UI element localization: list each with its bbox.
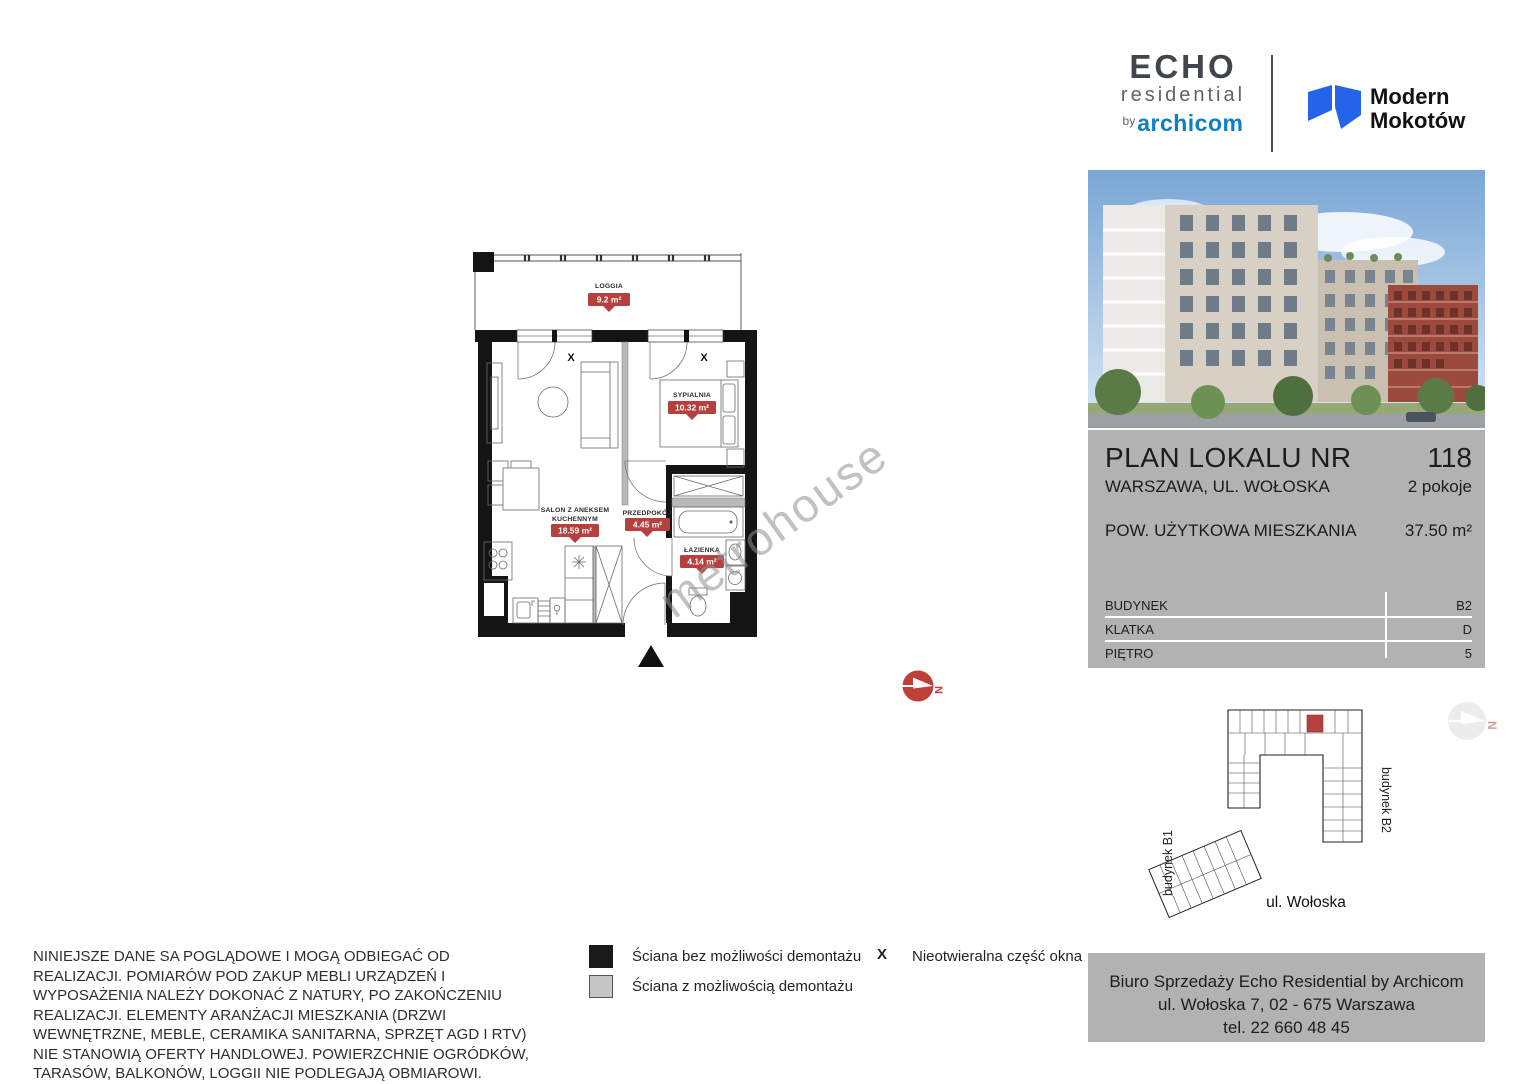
- svg-text:9.2 m²: 9.2 m²: [597, 295, 622, 305]
- echo-residential-text: residential: [1108, 84, 1258, 106]
- table-row: PIĘTRO 5: [1105, 642, 1472, 664]
- legend-swatch-solid-wall: [589, 945, 613, 968]
- archicom-logo-text: archicom: [1137, 110, 1243, 136]
- sales-office-phone: tel. 22 660 48 45: [1088, 1016, 1485, 1039]
- modern-mokotow-logo: Modern Mokotów: [1370, 85, 1465, 133]
- sales-office-name: Biuro Sprzedaży Echo Residential by Arch…: [1088, 970, 1485, 993]
- legend-label-removable-wall: Ściana z możliwością demontażu: [632, 978, 853, 995]
- floor-label: PIĘTRO: [1105, 646, 1153, 661]
- room-label-salon-line1: SALON Z ANEKSEM: [541, 507, 610, 514]
- echo-logo-text: ECHO: [1108, 52, 1258, 82]
- page-title: PLAN LOKALU NR: [1105, 442, 1352, 474]
- building-label: BUDYNEK: [1105, 598, 1168, 613]
- modern-mokotow-mark-icon: [1303, 82, 1363, 130]
- legal-disclaimer: NINIEJSZE DANE SA POGLĄDOWE I MOGĄ ODBIE…: [33, 947, 539, 1084]
- svg-text:18.59 m²: 18.59 m²: [558, 526, 592, 536]
- table-divider: [1385, 592, 1387, 658]
- fixed-window-mark: X: [567, 352, 575, 364]
- building-value: B2: [1456, 598, 1472, 613]
- building-render-photo: [1088, 170, 1485, 428]
- unit-number: 118: [1427, 442, 1472, 474]
- legend-label-solid-wall: Ściana bez możliwości demontażu: [632, 948, 861, 965]
- logo-divider: [1271, 55, 1273, 152]
- area-badge-loggia: 9.2 m²: [588, 293, 630, 312]
- fixed-window-mark: X: [700, 352, 708, 364]
- north-compass-icon: N: [900, 668, 952, 708]
- building-b1-label: budynek B1: [1161, 830, 1175, 896]
- by-label: by: [1123, 114, 1136, 128]
- legend-label-fixed-window: Nieotwieralna część okna: [912, 948, 1082, 965]
- table-row: BUDYNEK B2: [1105, 594, 1472, 618]
- echo-residential-logo: ECHO residential byarchicom: [1108, 52, 1258, 137]
- usable-area-value: 37.50 m²: [1405, 521, 1472, 541]
- svg-text:4.45 m²: 4.45 m²: [633, 520, 662, 530]
- site-north-compass-icon: N: [1446, 700, 1506, 744]
- project-name-line1: Modern: [1370, 85, 1465, 109]
- floor-value: 5: [1465, 646, 1472, 661]
- table-row: KLATKA D: [1105, 618, 1472, 642]
- staircase-label: KLATKA: [1105, 622, 1154, 637]
- unit-address: WARSZAWA, UL. WOŁOSKA: [1105, 477, 1330, 497]
- room-label-salon-line2: KUCHENNYM: [552, 516, 598, 523]
- room-label-przedpokoj: PRZEDPOKÓJ: [623, 508, 672, 517]
- staircase-value: D: [1463, 622, 1472, 637]
- room-label-loggia: LOGGIA: [595, 283, 623, 290]
- sales-office-box: Biuro Sprzedaży Echo Residential by Arch…: [1088, 953, 1485, 1042]
- legend-swatch-removable-wall: [589, 975, 613, 998]
- svg-text:N: N: [1485, 721, 1499, 730]
- legend-symbol-fixed-window: X: [877, 946, 887, 963]
- area-badge-salon: 18.59 m²: [551, 524, 599, 543]
- area-badge-przedpokoj: 4.45 m²: [625, 518, 670, 537]
- unit-rooms: 2 pokoje: [1408, 477, 1472, 497]
- usable-area-label: POW. UŻYTKOWA MIESZKANIA: [1105, 521, 1357, 541]
- building-b2-label: budynek B2: [1379, 767, 1393, 833]
- project-name-line2: Mokotów: [1370, 109, 1465, 133]
- sales-office-address: ul. Wołoska 7, 02 - 675 Warszawa: [1088, 993, 1485, 1016]
- area-badge-sypialnia: 10.32 m²: [668, 401, 716, 420]
- unit-details-panel: PLAN LOKALU NR 118 WARSZAWA, UL. WOŁOSKA…: [1088, 430, 1485, 668]
- street-label: ul. Wołoska: [1266, 894, 1346, 911]
- svg-text:10.32 m²: 10.32 m²: [675, 403, 709, 413]
- room-label-sypialnia: SYPIALNIA: [673, 392, 711, 399]
- site-plan: budynek B2 budynek B1 ul. Wołoska: [1145, 693, 1445, 923]
- svg-text:N: N: [932, 686, 944, 694]
- highlighted-unit: [1307, 715, 1323, 732]
